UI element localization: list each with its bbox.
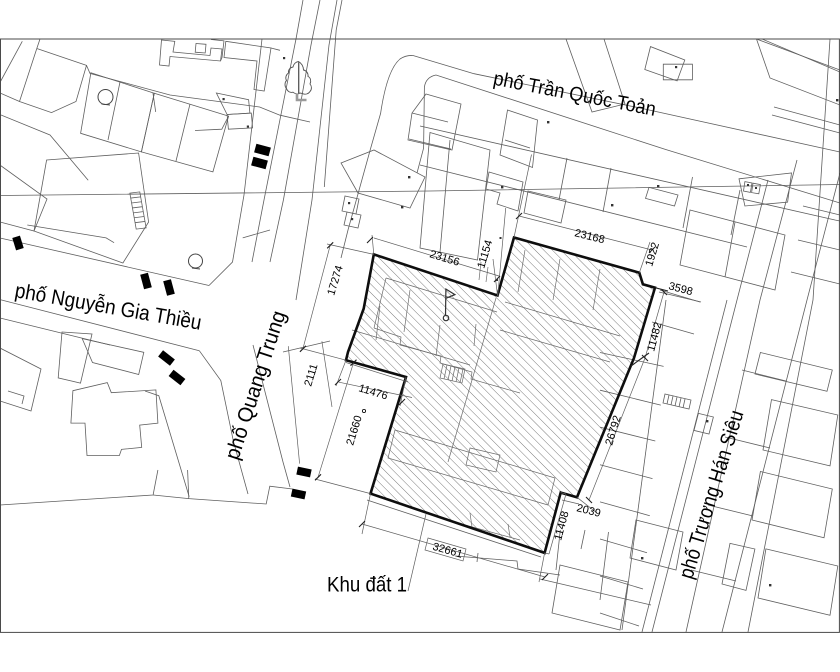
svg-text:Khu đất 1: Khu đất 1 <box>327 573 407 596</box>
